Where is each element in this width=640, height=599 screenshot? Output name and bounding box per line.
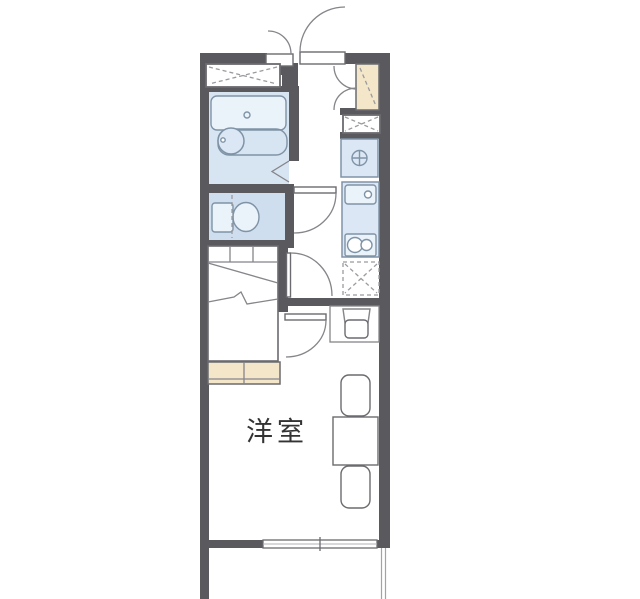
burner-icon bbox=[361, 240, 372, 251]
bathtub bbox=[211, 96, 286, 130]
shoe-cabinet bbox=[334, 64, 379, 110]
room-door bbox=[285, 314, 326, 357]
chair-icon bbox=[341, 375, 370, 416]
entrance-door bbox=[300, 7, 345, 64]
faucet-icon bbox=[365, 191, 372, 198]
room-label: 洋室 bbox=[246, 417, 308, 448]
loft-stairs bbox=[208, 246, 278, 361]
washing-machine-space bbox=[341, 139, 378, 177]
floorplan-drawing: 洋室 bbox=[0, 0, 640, 599]
refrigerator-space bbox=[343, 262, 379, 295]
faucet-icon bbox=[221, 138, 225, 142]
gas-stove bbox=[345, 234, 376, 256]
floorplan: 洋室 bbox=[0, 0, 640, 599]
chair-icon bbox=[341, 466, 370, 508]
kitchen-sink bbox=[345, 185, 376, 204]
burner-icon bbox=[348, 238, 363, 253]
corridor-door bbox=[287, 253, 333, 297]
meter-box-door bbox=[266, 31, 293, 66]
storage-box bbox=[343, 115, 380, 133]
window bbox=[263, 537, 377, 551]
balcony bbox=[382, 548, 386, 599]
chair-icon bbox=[343, 309, 370, 338]
closet bbox=[208, 362, 280, 384]
hall-door bbox=[294, 187, 336, 233]
table bbox=[333, 417, 378, 465]
dining-set bbox=[333, 375, 378, 508]
kitchen-counter bbox=[342, 182, 379, 257]
storage-shelf bbox=[206, 64, 280, 87]
desk bbox=[330, 306, 379, 342]
